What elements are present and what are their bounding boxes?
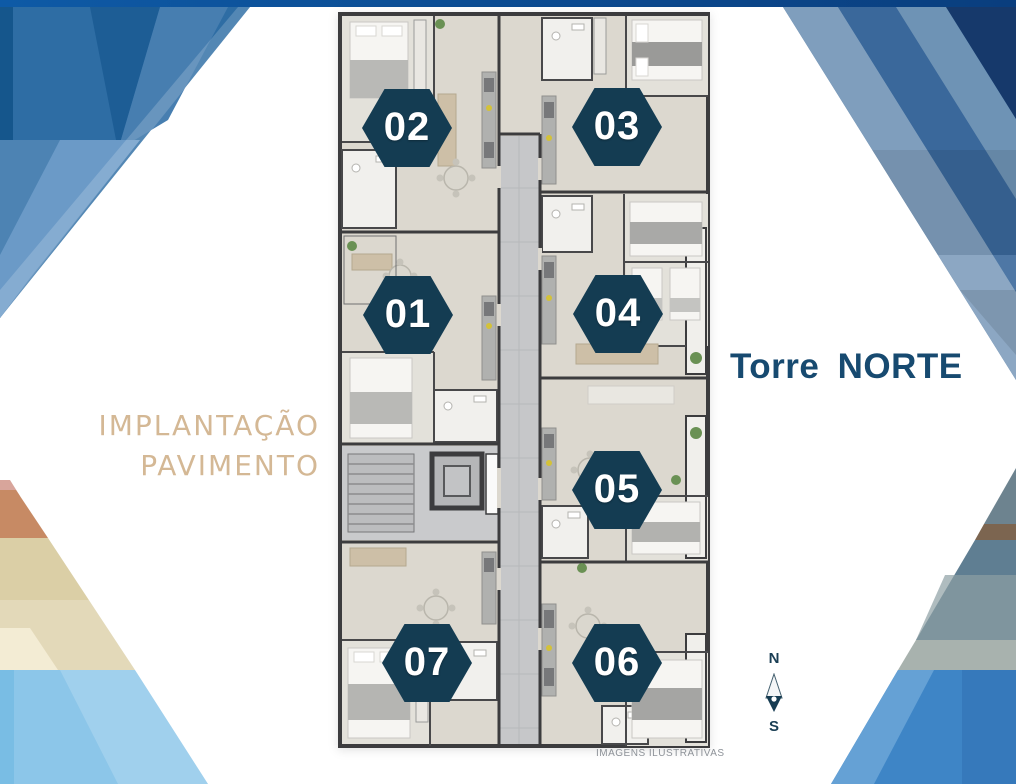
chaise	[588, 386, 674, 404]
compass: N S	[758, 651, 790, 734]
wardrobe	[594, 18, 606, 74]
facet-shape	[872, 150, 1016, 255]
top-edge-strip	[0, 0, 1016, 7]
unit-number: 02	[384, 107, 431, 149]
facet-shape	[975, 524, 1016, 540]
corner-decoration-bottom-left	[0, 480, 208, 784]
facet-shape	[0, 490, 48, 538]
bed	[350, 22, 408, 98]
tower-name-label: Torre NORTE	[730, 347, 963, 387]
page-title: IMPLANTAÇÃO PAVIMENTO	[0, 406, 320, 486]
sofa	[350, 548, 406, 566]
bed	[630, 202, 702, 256]
unit-number: 03	[594, 106, 641, 148]
bed	[350, 358, 412, 438]
unit-number: 01	[385, 294, 432, 336]
page-title-line1: IMPLANTAÇÃO	[0, 406, 320, 446]
compass-south-label: S	[758, 719, 790, 734]
bathroom	[542, 506, 588, 558]
facet-shape	[898, 640, 1016, 670]
bathroom	[434, 390, 497, 442]
facet-shape	[916, 575, 1016, 640]
disclaimer-text: IMAGENS ILUSTRATIVAS	[596, 748, 725, 759]
unit-number: 05	[594, 469, 641, 511]
bed	[632, 20, 702, 80]
compass-needle-icon	[764, 673, 784, 713]
page-title-line2: PAVIMENTO	[0, 446, 320, 486]
unit-number: 04	[595, 293, 642, 335]
bed	[670, 268, 700, 320]
corridor	[499, 136, 540, 744]
corner-decoration-bottom-right	[831, 468, 1016, 784]
unit-number: 07	[404, 642, 451, 684]
stairs	[348, 454, 414, 532]
lounge-chair	[352, 254, 392, 270]
facet-shape	[962, 670, 1016, 784]
elevator	[432, 454, 482, 508]
core	[342, 446, 499, 540]
elevator-shaft	[486, 454, 498, 514]
plant	[690, 427, 702, 439]
corner-decoration-top-right	[783, 7, 1016, 380]
plant	[690, 352, 702, 364]
facet-shape	[0, 670, 14, 784]
facet-shape	[984, 468, 1016, 524]
facet-shape	[0, 7, 13, 140]
wardrobe	[414, 20, 426, 94]
corner-decoration-top-left	[0, 7, 250, 318]
compass-north-label: N	[758, 651, 790, 666]
implantation-slide: 02 03 01 04 05 07 06 IMPLANTAÇÃO PAVIMEN…	[0, 0, 1016, 784]
unit-number: 06	[594, 642, 641, 684]
